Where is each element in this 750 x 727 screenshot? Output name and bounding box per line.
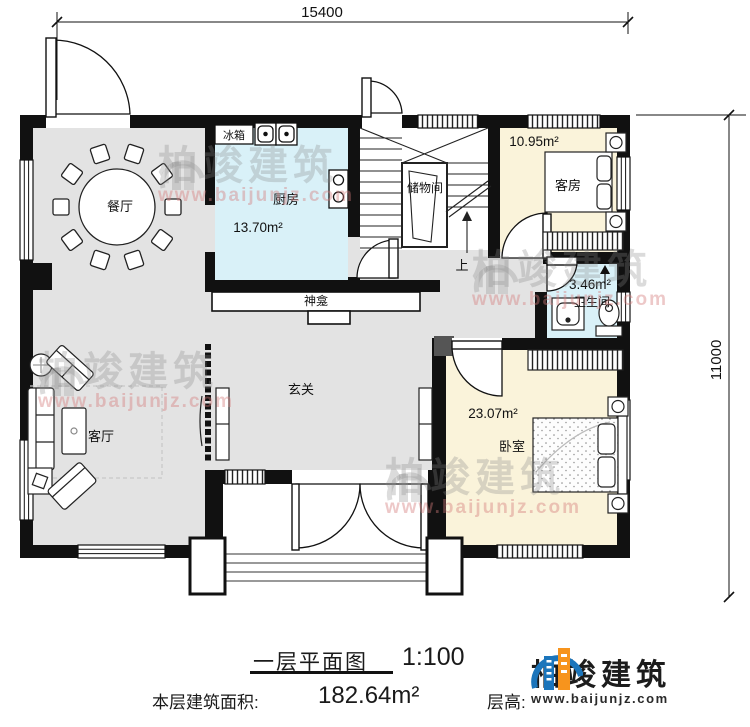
porch-column-left <box>190 538 225 594</box>
dimension-height-label: 11000 <box>708 340 725 381</box>
wall-kitchen-east <box>348 128 360 237</box>
wall-bath-west <box>535 292 547 345</box>
label-foyer: 玄关 <box>288 382 314 397</box>
area-bath: 3.46m² <box>569 277 612 292</box>
kitchen-stove <box>329 170 348 208</box>
label-guest: 客房 <box>555 178 581 193</box>
wall-kitchen-south <box>205 280 440 292</box>
tv-cabinet <box>216 388 229 460</box>
kitchen-sink <box>255 123 297 145</box>
opening-dining-back-door <box>46 115 130 128</box>
wall-pilaster-left <box>33 263 52 290</box>
bedroom-nightstand-2 <box>608 494 628 513</box>
brand-logo: 柏竣建筑 www.baijunjz.com <box>531 640 750 727</box>
window-top-stairs <box>418 115 478 128</box>
bed-headboard <box>618 416 627 494</box>
window-left-dining <box>20 160 33 260</box>
wall-bedroom-west <box>432 350 446 470</box>
area-bedroom: 23.07m² <box>468 406 518 421</box>
floor-plan-canvas: 15400 11000 餐厅 厨房 13.70m² 冰箱 储物间 上 客房 10… <box>0 0 750 727</box>
window-right-guest <box>617 157 630 210</box>
brand-logo-icon <box>531 640 583 704</box>
coffee-table <box>62 408 86 454</box>
area-kitchen: 13.70m² <box>233 220 283 235</box>
label-storage: 储物间 <box>407 180 443 195</box>
label-living: 客厅 <box>88 429 114 444</box>
guest-pillow-1 <box>597 156 611 181</box>
floor-area-value: 182.64m² <box>318 682 419 710</box>
window-top-guest <box>528 115 600 128</box>
bedroom-wardrobe <box>528 350 623 370</box>
guest-nightstand-1 <box>606 133 626 152</box>
floor-height-label: 层高: <box>487 688 526 713</box>
label-shrine: 神龛 <box>304 294 328 308</box>
plan-scale: 1:100 <box>402 643 465 672</box>
foyer-cabinet <box>419 388 432 460</box>
plan-title-underline <box>250 671 393 674</box>
label-dining: 餐厅 <box>107 199 133 214</box>
guest-nightstand-2 <box>606 212 626 231</box>
bedroom-nightstand-1 <box>608 397 628 416</box>
area-guest: 10.95m² <box>509 134 559 149</box>
opening-entry-door <box>292 470 428 484</box>
sofa-long <box>28 388 54 470</box>
label-fridge: 冰箱 <box>223 128 245 142</box>
wall-kitchen-west-upper <box>205 128 215 205</box>
door-dining-back <box>46 38 130 117</box>
label-bath: 卫生间 <box>574 295 610 309</box>
floor-plan-drawing: 15400 11000 餐厅 厨房 13.70m² 冰箱 储物间 上 客房 10… <box>0 0 750 727</box>
guest-pillow-2 <box>597 184 611 209</box>
column-foyer-corner <box>434 336 454 356</box>
guest-wardrobe <box>543 232 623 250</box>
porch-column-right <box>427 538 462 594</box>
label-kitchen: 厨房 <box>273 192 299 207</box>
bedroom-pillow-1 <box>598 424 615 454</box>
bedroom-pillow-2 <box>598 457 615 487</box>
label-stairs-up: 上 <box>455 258 468 273</box>
window-living-south <box>78 545 165 558</box>
wall-stairs-east <box>488 128 500 258</box>
dimension-width-label: 15400 <box>301 4 343 21</box>
window-foyer <box>225 470 265 484</box>
floor-area-label: 本层建筑面积: <box>152 688 259 713</box>
door-stairs-back <box>362 78 402 117</box>
window-bedroom-south <box>497 545 583 558</box>
label-bedroom: 卧室 <box>499 439 525 454</box>
